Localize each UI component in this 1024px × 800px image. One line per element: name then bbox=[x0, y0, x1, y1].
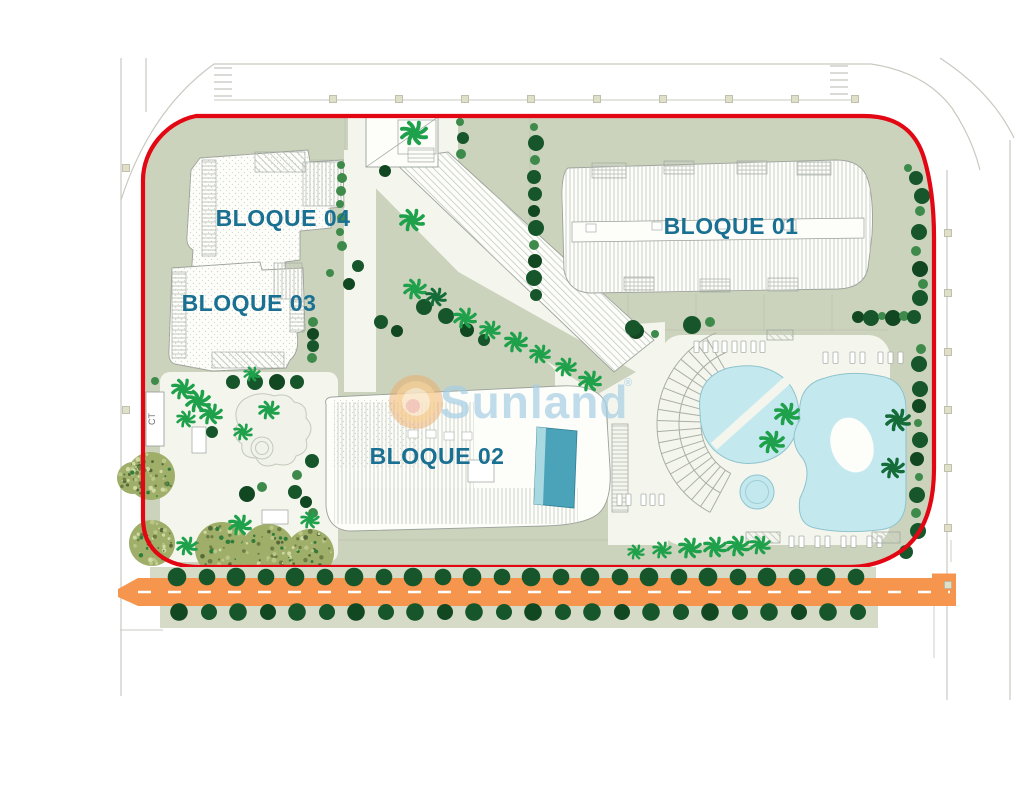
speckle-dot bbox=[291, 559, 293, 561]
speckle-dot bbox=[155, 474, 158, 477]
label-bloque-01: BLOQUE 01 bbox=[664, 213, 799, 239]
speckle-dot bbox=[127, 479, 130, 482]
speckle-dot bbox=[314, 541, 317, 544]
street-tree-icon bbox=[494, 569, 511, 586]
sun-lounger-icon bbox=[713, 341, 718, 353]
sun-lounger-icon bbox=[626, 494, 631, 506]
brand-wordmark: Sunland bbox=[440, 376, 628, 428]
street-tree-icon bbox=[201, 604, 217, 620]
speckle-dot bbox=[267, 530, 271, 534]
tree-icon bbox=[911, 246, 921, 256]
tree-icon bbox=[151, 377, 159, 385]
tree-icon bbox=[909, 171, 923, 185]
sun-lounger-icon bbox=[823, 352, 828, 364]
street-tree-icon bbox=[642, 603, 660, 621]
speckle-dot bbox=[318, 532, 321, 535]
tree-icon bbox=[885, 310, 901, 326]
speckle-dot bbox=[146, 453, 148, 455]
sunland-watermark: Sunland ® bbox=[389, 375, 632, 429]
tree-icon bbox=[305, 454, 319, 468]
street-tree-icon bbox=[319, 604, 335, 620]
tree-icon bbox=[705, 317, 715, 327]
street-tree-icon bbox=[435, 569, 452, 586]
palm-center bbox=[758, 543, 762, 547]
speckle-dot bbox=[134, 478, 137, 481]
street-lamp-icon bbox=[945, 525, 952, 532]
speckle-dot bbox=[277, 527, 281, 531]
speckle-dot bbox=[284, 546, 286, 548]
speckle-dot bbox=[296, 537, 299, 540]
street-tree-icon bbox=[199, 569, 216, 586]
tree-icon bbox=[911, 224, 927, 240]
speckle-dot bbox=[292, 562, 295, 565]
palm-center bbox=[896, 418, 901, 423]
speckle-dot bbox=[259, 559, 261, 561]
speckle-dot bbox=[204, 531, 207, 534]
tree-icon bbox=[530, 155, 540, 165]
sun-lounger-icon bbox=[732, 341, 737, 353]
speckle-dot bbox=[162, 478, 164, 480]
kiosk bbox=[192, 427, 206, 453]
street-tree-icon bbox=[376, 569, 393, 586]
tree-icon bbox=[269, 374, 285, 390]
tree-icon bbox=[307, 353, 317, 363]
speckle-dot bbox=[156, 495, 158, 497]
palm-center bbox=[434, 295, 438, 299]
speckle-dot bbox=[280, 546, 283, 549]
tree-icon bbox=[257, 482, 267, 492]
speckle-dot bbox=[148, 557, 153, 562]
speckle-dot bbox=[130, 470, 134, 474]
speckle-dot bbox=[289, 559, 291, 561]
sun-lounger-icon bbox=[722, 341, 727, 353]
speckle-dot bbox=[137, 475, 139, 477]
tree-icon bbox=[528, 254, 542, 268]
street-tree-icon bbox=[730, 569, 747, 586]
palm-center bbox=[410, 218, 415, 223]
tree-icon bbox=[307, 340, 319, 352]
tree-icon bbox=[911, 508, 921, 518]
speckle-dot bbox=[219, 529, 222, 532]
palm-center bbox=[736, 544, 740, 548]
sun-lounger-icon bbox=[898, 352, 903, 364]
speckle-dot bbox=[281, 541, 284, 544]
tree-icon bbox=[308, 317, 318, 327]
label-bloque-04: BLOQUE 04 bbox=[216, 205, 351, 231]
speckle-dot bbox=[287, 551, 291, 555]
speckle-dot bbox=[120, 485, 124, 489]
sun-lounger-icon bbox=[741, 341, 746, 353]
speckle-dot bbox=[308, 529, 313, 534]
tree-icon bbox=[912, 399, 926, 413]
speckle-dot bbox=[157, 547, 159, 549]
tree-icon bbox=[379, 165, 391, 177]
sun-lounger-icon bbox=[659, 494, 664, 506]
tree-icon bbox=[528, 135, 544, 151]
speckle-dot bbox=[330, 551, 332, 553]
speckle-dot bbox=[168, 537, 171, 540]
speckle-dot bbox=[219, 548, 222, 551]
sun-lounger-icon bbox=[703, 341, 708, 353]
registered-mark: ® bbox=[624, 377, 632, 389]
street-tree-icon bbox=[848, 569, 865, 586]
speckle-dot bbox=[132, 462, 136, 466]
tree-icon bbox=[343, 278, 355, 290]
speckle-dot bbox=[209, 549, 214, 554]
speckle-dot bbox=[284, 537, 288, 541]
tree-icon bbox=[352, 260, 364, 272]
speckle-dot bbox=[146, 491, 150, 495]
speckle-dot bbox=[226, 556, 230, 560]
speckle-dot bbox=[209, 545, 212, 548]
pergola-icon bbox=[872, 532, 900, 543]
street-tree-icon bbox=[850, 604, 866, 620]
street-tree-icon bbox=[553, 569, 570, 586]
tree-icon bbox=[528, 205, 540, 217]
palm-center bbox=[196, 399, 201, 404]
street-lamp-icon bbox=[330, 96, 337, 103]
street-lamp-icon bbox=[945, 230, 952, 237]
street-tree-icon bbox=[465, 603, 483, 621]
speckle-dot bbox=[219, 525, 222, 528]
speckle-dot bbox=[228, 533, 231, 536]
speckle-dot bbox=[139, 553, 143, 557]
tree-icon bbox=[852, 311, 864, 323]
street-lamp-icon bbox=[945, 407, 952, 414]
palm-center bbox=[241, 430, 245, 434]
sun-lounger-icon bbox=[888, 352, 893, 364]
tree-icon bbox=[915, 206, 925, 216]
tree-icon bbox=[530, 123, 538, 131]
speckle-dot bbox=[156, 522, 159, 525]
speckle-dot bbox=[164, 475, 166, 477]
tree-icon bbox=[288, 485, 302, 499]
palm-center bbox=[308, 518, 312, 522]
tree-icon bbox=[391, 325, 403, 337]
tree-icon bbox=[336, 186, 346, 196]
speckle-dot bbox=[328, 547, 330, 549]
palm-center bbox=[250, 372, 253, 375]
sun-lounger-icon bbox=[860, 352, 865, 364]
speckle-dot bbox=[242, 549, 246, 553]
street-lamp-icon bbox=[945, 582, 952, 589]
speckle-dot bbox=[153, 530, 157, 534]
speckle-dot bbox=[135, 471, 139, 475]
speckle-dot bbox=[311, 542, 313, 544]
crosswalk-top-left bbox=[214, 68, 232, 96]
street-tree-icon bbox=[168, 568, 187, 587]
speckle-dot bbox=[272, 533, 275, 536]
tree-icon bbox=[878, 312, 886, 320]
street-tree-icon bbox=[258, 569, 275, 586]
speckle-dot bbox=[261, 536, 263, 538]
speckle-dot bbox=[315, 550, 319, 554]
palm-center bbox=[785, 412, 790, 417]
speckle-dot bbox=[257, 553, 259, 555]
speckle-dot bbox=[272, 552, 276, 556]
sun-lounger-icon bbox=[851, 536, 856, 548]
street-lamp-icon bbox=[660, 96, 667, 103]
street-tree-icon bbox=[286, 568, 305, 587]
street-lamp-icon bbox=[726, 96, 733, 103]
sun-lounger-icon bbox=[799, 536, 804, 548]
sun-lounger-icon bbox=[789, 536, 794, 548]
top-right-outer-curve bbox=[940, 58, 1014, 138]
tree-icon bbox=[526, 270, 542, 286]
tree-icon bbox=[529, 240, 539, 250]
crosswalk-top-right bbox=[830, 66, 848, 94]
tree-icon bbox=[907, 310, 921, 324]
palm-center bbox=[411, 130, 416, 135]
street-lamp-icon bbox=[792, 96, 799, 103]
palm-center bbox=[413, 287, 417, 291]
street-tree-icon bbox=[673, 604, 689, 620]
speckle-dot bbox=[206, 535, 209, 538]
sun-lounger-icon bbox=[878, 352, 883, 364]
sun-lounger-icon bbox=[841, 536, 846, 548]
speckle-dot bbox=[150, 520, 155, 525]
speckle-dot bbox=[276, 540, 280, 544]
palm-center bbox=[538, 352, 542, 356]
sun-lounger-icon bbox=[833, 352, 838, 364]
tree-icon bbox=[527, 170, 541, 184]
sun-lounger-icon bbox=[760, 341, 765, 353]
speckle-dot bbox=[223, 547, 225, 549]
sun-lounger-icon bbox=[617, 494, 622, 506]
tree-icon bbox=[528, 220, 544, 236]
street-lamp-icon bbox=[123, 407, 130, 414]
street-tree-icon bbox=[347, 603, 365, 621]
speckle-dot bbox=[257, 542, 261, 546]
speckle-dot bbox=[234, 558, 236, 560]
speckle-dot bbox=[308, 554, 311, 557]
street-lamp-icon bbox=[945, 349, 952, 356]
speckle-dot bbox=[169, 532, 171, 534]
tree-icon bbox=[528, 187, 542, 201]
tree-icon bbox=[337, 161, 345, 169]
street-tree-icon bbox=[378, 604, 394, 620]
tree-icon bbox=[912, 432, 928, 448]
street-lamp-icon bbox=[528, 96, 535, 103]
palm-center bbox=[770, 440, 775, 445]
speckle-dot bbox=[149, 474, 152, 477]
street-tree-icon bbox=[437, 604, 453, 620]
speckle-dot bbox=[221, 559, 224, 562]
sun-lounger-icon bbox=[815, 536, 820, 548]
speckle-dot bbox=[161, 463, 163, 465]
speckle-dot bbox=[168, 468, 171, 471]
speckle-dot bbox=[290, 562, 292, 564]
pergola-icon bbox=[767, 330, 793, 340]
tree-icon bbox=[904, 164, 912, 172]
palm-center bbox=[185, 544, 189, 548]
tree-icon bbox=[911, 356, 927, 372]
speckle-dot bbox=[162, 534, 165, 537]
tree-icon bbox=[625, 320, 641, 336]
speckle-dot bbox=[159, 470, 162, 473]
palm-center bbox=[660, 548, 664, 552]
speckle-dot bbox=[200, 554, 205, 559]
speckle-dot bbox=[162, 459, 166, 463]
speckle-dot bbox=[271, 536, 275, 540]
street-tree-icon bbox=[760, 603, 778, 621]
tree-icon bbox=[916, 344, 926, 354]
speckle-dot bbox=[226, 540, 230, 544]
speckle-dot bbox=[294, 544, 296, 546]
street-tree-icon bbox=[463, 568, 482, 587]
tree-icon bbox=[914, 188, 930, 204]
tree-icon bbox=[307, 328, 319, 340]
speckle-dot bbox=[169, 544, 173, 548]
sun-lounger-icon bbox=[641, 494, 646, 506]
speckle-dot bbox=[214, 526, 216, 528]
sun-lounger-icon bbox=[694, 341, 699, 353]
tree-icon bbox=[456, 149, 466, 159]
speckle-dot bbox=[152, 489, 156, 493]
street-tree-icon bbox=[583, 603, 601, 621]
street-tree-icon bbox=[229, 603, 247, 621]
street-tree-icon bbox=[406, 603, 424, 621]
speckle-dot bbox=[296, 549, 298, 551]
speckle-dot bbox=[123, 474, 125, 476]
street-tree-icon bbox=[555, 604, 571, 620]
speckle-dot bbox=[231, 540, 235, 544]
speckle-dot bbox=[303, 558, 307, 562]
speckle-dot bbox=[210, 535, 213, 538]
street-lamp-icon bbox=[396, 96, 403, 103]
street-tree-icon bbox=[404, 568, 423, 587]
speckle-dot bbox=[158, 527, 160, 529]
speckle-dot bbox=[139, 536, 143, 540]
palm-center bbox=[891, 466, 895, 470]
speckle-dot bbox=[299, 546, 302, 549]
speckle-dot bbox=[298, 531, 303, 536]
street-tree-icon bbox=[260, 604, 276, 620]
street-lamp-icon bbox=[594, 96, 601, 103]
palm-center bbox=[463, 316, 467, 320]
speckle-dot bbox=[323, 538, 326, 541]
speckle-dot bbox=[123, 478, 126, 481]
tree-icon bbox=[300, 496, 312, 508]
street-tree-icon bbox=[732, 604, 748, 620]
speckle-dot bbox=[319, 555, 323, 559]
speckle-dot bbox=[267, 559, 269, 561]
street-lamp-icon bbox=[462, 96, 469, 103]
street-tree-icon bbox=[671, 569, 688, 586]
street-tree-icon bbox=[817, 568, 836, 587]
street-lamp-icon bbox=[852, 96, 859, 103]
speckle-dot bbox=[151, 477, 155, 481]
speckle-dot bbox=[269, 525, 274, 530]
speckle-dot bbox=[137, 539, 140, 542]
street-tree-icon bbox=[789, 569, 806, 586]
speckle-dot bbox=[311, 549, 314, 552]
tree-icon bbox=[292, 470, 302, 480]
speckle-dot bbox=[161, 487, 165, 491]
ct-box: CT bbox=[146, 392, 164, 446]
site-plan-canvas: CT Sunland ® BLOQUE 04 BLOQUE 03 BLOQUE … bbox=[0, 0, 1024, 800]
tree-icon bbox=[914, 419, 922, 427]
speckle-dot bbox=[133, 544, 137, 548]
speckle-dot bbox=[270, 547, 274, 551]
speckle-dot bbox=[219, 535, 224, 540]
street-tree-icon bbox=[612, 569, 629, 586]
speckle-dot bbox=[133, 536, 137, 540]
speckle-dot bbox=[303, 535, 308, 540]
speckle-dot bbox=[288, 557, 290, 559]
speckle-dot bbox=[257, 561, 261, 565]
speckle-dot bbox=[163, 550, 165, 552]
tree-icon bbox=[912, 261, 928, 277]
street-tree-icon bbox=[522, 568, 541, 587]
speckle-dot bbox=[151, 460, 154, 463]
speckle-dot bbox=[153, 535, 157, 539]
speckle-dot bbox=[164, 482, 168, 486]
tree-icon bbox=[457, 132, 469, 144]
sun-lounger-icon bbox=[825, 536, 830, 548]
tree-icon bbox=[290, 375, 304, 389]
tree-icon bbox=[909, 487, 925, 503]
speckle-dot bbox=[246, 542, 249, 545]
tree-icon bbox=[438, 308, 454, 324]
street-tree-icon bbox=[345, 568, 364, 587]
building-bloque-03 bbox=[169, 262, 305, 371]
speckle-dot bbox=[266, 556, 270, 560]
street-tree-icon bbox=[614, 604, 630, 620]
speckle-dot bbox=[170, 485, 172, 487]
speckle-dot bbox=[246, 551, 249, 554]
speckle-dot bbox=[162, 545, 165, 548]
speckle-dot bbox=[135, 457, 140, 462]
speckle-dot bbox=[311, 560, 314, 563]
sun-lounger-icon bbox=[850, 352, 855, 364]
street-tree-icon bbox=[791, 604, 807, 620]
street-tree-icon bbox=[227, 568, 246, 587]
tree-icon bbox=[226, 375, 240, 389]
street-tree-icon bbox=[288, 603, 306, 621]
street-tree-icon bbox=[524, 603, 542, 621]
street-lamp-icon bbox=[945, 290, 952, 297]
speckle-dot bbox=[133, 486, 137, 490]
palm-center bbox=[184, 417, 188, 421]
speckle-dot bbox=[251, 539, 255, 543]
tree-icon bbox=[912, 290, 928, 306]
tree-icon bbox=[918, 279, 928, 289]
tree-icon bbox=[912, 381, 928, 397]
ct-label: CT bbox=[147, 413, 157, 425]
street-tree-icon bbox=[640, 568, 659, 587]
palm-center bbox=[514, 340, 518, 344]
site-plan-drawing: CT Sunland ® BLOQUE 04 BLOQUE 03 BLOQUE … bbox=[0, 0, 1024, 800]
street-tree-icon bbox=[170, 603, 188, 621]
tree-icon bbox=[651, 330, 659, 338]
tree-icon bbox=[863, 310, 879, 326]
speckle-dot bbox=[154, 485, 157, 488]
speckle-dot bbox=[213, 549, 217, 553]
street-tree-icon bbox=[496, 604, 512, 620]
orange-road-step bbox=[932, 574, 956, 580]
tree-icon bbox=[915, 473, 923, 481]
palm-center bbox=[181, 387, 185, 391]
speckle-dot bbox=[137, 533, 140, 536]
tree-icon bbox=[683, 316, 701, 334]
tree-icon bbox=[326, 269, 334, 277]
palm-center bbox=[564, 365, 568, 369]
street-tree-icon bbox=[581, 568, 600, 587]
tree-icon bbox=[337, 241, 347, 251]
speckle-dot bbox=[304, 545, 308, 549]
speckle-dot bbox=[292, 546, 295, 549]
